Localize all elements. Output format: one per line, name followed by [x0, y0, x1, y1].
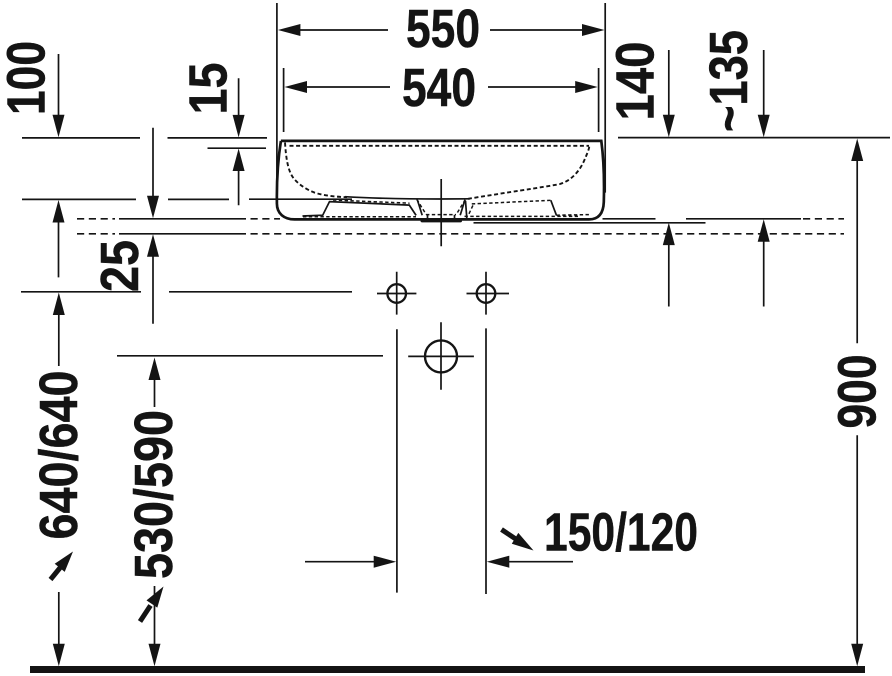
- svg-text:25: 25: [90, 240, 150, 292]
- svg-text:540: 540: [402, 58, 476, 118]
- svg-text:530/590: 530/590: [124, 410, 184, 579]
- svg-text:550: 550: [406, 0, 480, 59]
- svg-text:640/640: 640/640: [29, 371, 89, 540]
- svg-text:140: 140: [606, 42, 666, 121]
- svg-text:~135: ~135: [699, 30, 759, 132]
- svg-text:150/120: 150/120: [544, 503, 698, 563]
- svg-text:100: 100: [0, 41, 57, 115]
- svg-text:900: 900: [828, 355, 888, 429]
- svg-text:15: 15: [179, 63, 239, 115]
